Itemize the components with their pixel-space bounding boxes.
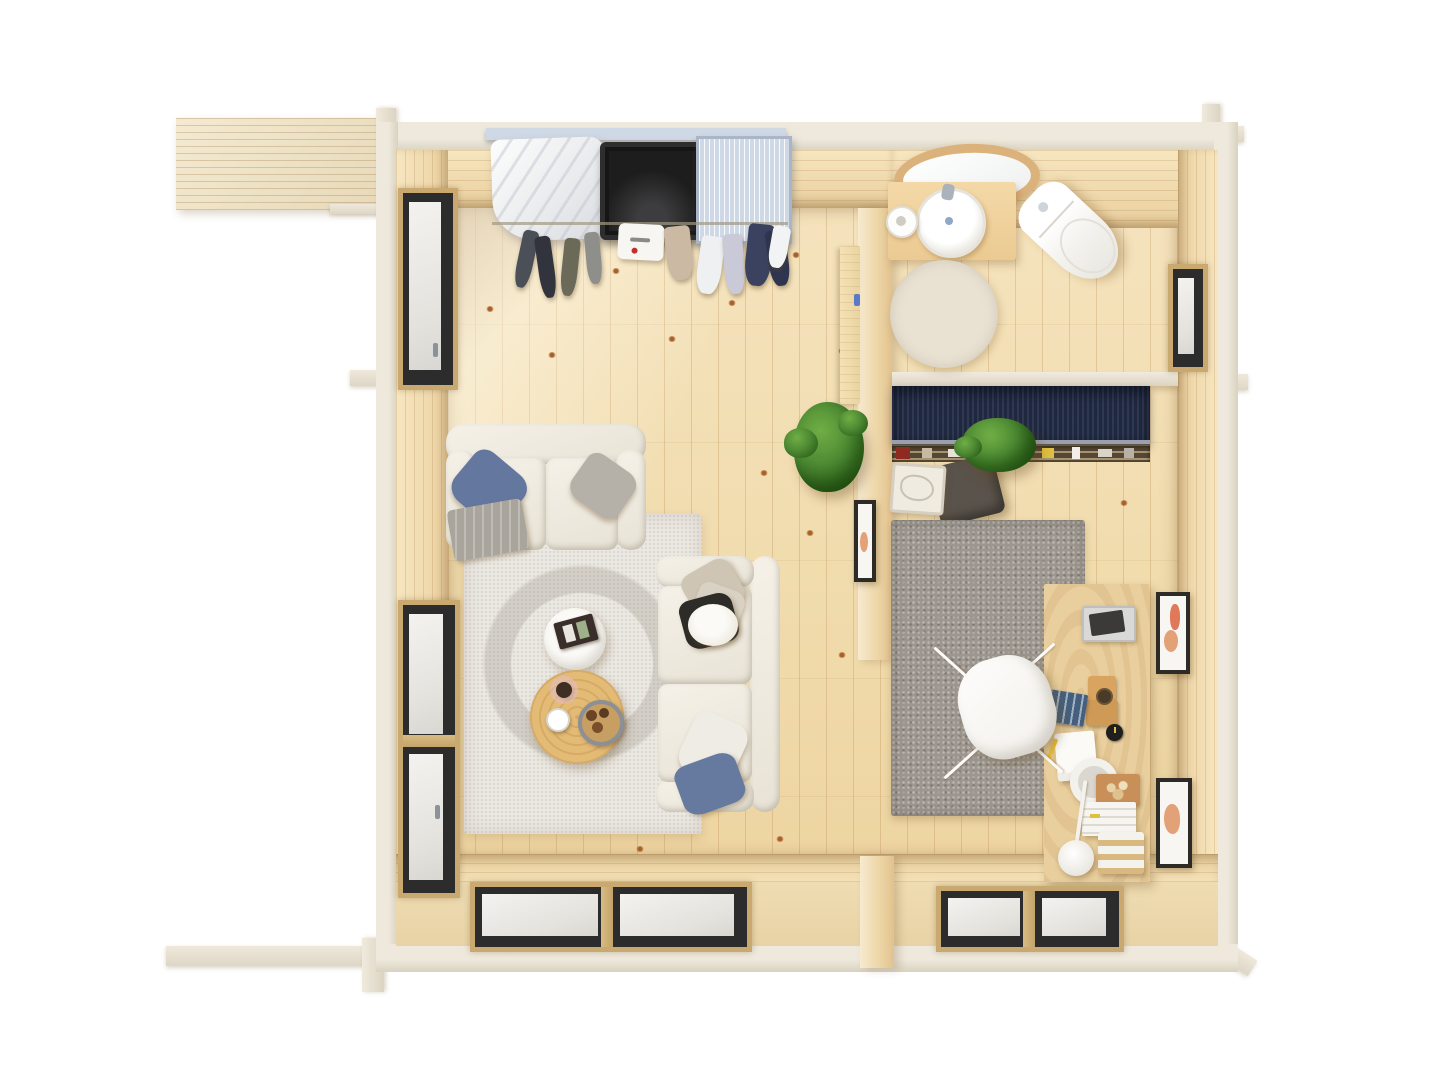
plant-sprig (784, 428, 818, 458)
garment-cover (490, 136, 607, 242)
window-glass (1039, 895, 1109, 939)
toilet-paper-roll (886, 206, 918, 238)
flower-vase (556, 682, 572, 698)
door-handle (854, 294, 860, 306)
right-wall-inner (1178, 150, 1218, 880)
tote-bag (617, 223, 665, 261)
window-left-lower (398, 600, 460, 898)
floor-knot (776, 836, 784, 842)
window-glass (406, 751, 446, 883)
window-handle (433, 343, 438, 357)
window-left-upper (398, 188, 458, 390)
pastry (592, 722, 603, 733)
cabin-top-view (0, 0, 1445, 1084)
organizer-opening (609, 151, 695, 231)
bathroom-office-wall-edge (892, 372, 1178, 386)
floor-knot (838, 652, 846, 658)
storage-basket (889, 462, 946, 516)
book-spine (896, 447, 910, 459)
partition-wall (858, 208, 892, 660)
book-spine (1124, 448, 1134, 458)
organizer-knob (1096, 688, 1113, 705)
dried-sprigs (1101, 779, 1135, 801)
floor-knot (760, 470, 768, 476)
partition-wall-stub-bottom (860, 856, 894, 968)
floor-knot (806, 530, 814, 536)
book-spine (1072, 447, 1080, 459)
roll-core (896, 216, 906, 226)
glazed-door-living (470, 882, 752, 952)
book-spine (922, 448, 932, 458)
door-glass (479, 891, 601, 939)
floor-knot (548, 352, 556, 358)
art-shape-terracotta (1170, 604, 1180, 630)
wall-art-bottom (1156, 778, 1192, 868)
plant-sprig (838, 410, 868, 436)
art-shape-peach-large (1164, 804, 1180, 834)
magazine-tray (1082, 606, 1136, 642)
door-mullion (601, 887, 613, 947)
window-handle (435, 805, 440, 819)
magazine-page (562, 624, 576, 643)
window-mullion (403, 735, 455, 747)
pastry (599, 708, 609, 718)
art-shape-peach (1164, 630, 1178, 652)
desk-clock (1106, 724, 1123, 741)
basin-drain (945, 217, 953, 225)
book-spine (1042, 448, 1054, 458)
floor-knot (486, 306, 494, 312)
sun-hat (688, 604, 738, 646)
flush-button (1036, 200, 1050, 214)
book-spine (1098, 449, 1112, 457)
bathroom-door-open (840, 246, 860, 404)
chaise-backrest (750, 556, 780, 812)
plant-sprig (954, 436, 982, 458)
serving-plate (578, 700, 624, 746)
left-wall-outer (376, 122, 398, 970)
clock-hand (1114, 727, 1116, 733)
floor-knot (612, 268, 620, 274)
floor-knot (636, 846, 644, 852)
window-glass (406, 611, 446, 737)
coffee-cup (546, 708, 570, 732)
roof-overhang (176, 118, 388, 210)
floor-knot (728, 300, 736, 306)
trailing-plant (962, 418, 1036, 472)
pastry (586, 710, 597, 721)
window-glass (406, 199, 444, 373)
floor-knot (668, 336, 676, 342)
glazed-window-office (936, 886, 1124, 952)
letter-trays (1098, 832, 1144, 874)
partition-picture-frame (854, 500, 876, 582)
door-glass (617, 891, 737, 939)
magazine-page (576, 620, 590, 639)
lamp-base (1058, 840, 1094, 876)
bathroom-window-glass (1175, 275, 1197, 357)
wall-art-top (1156, 592, 1190, 674)
floor-knot (1120, 500, 1128, 506)
floor-knot (792, 252, 800, 258)
bathroom-rug (890, 260, 998, 368)
bathroom-window (1168, 264, 1208, 372)
potted-plant (794, 402, 864, 492)
foundation-beam-left (166, 946, 386, 966)
window-mullion (1023, 891, 1035, 947)
basket-fold (899, 474, 935, 502)
book-stack (1082, 802, 1136, 836)
yellow-tab (1090, 814, 1100, 818)
partition-art-shape (860, 532, 868, 552)
magazine-in-tray (1089, 610, 1126, 637)
tote-logo (630, 237, 650, 242)
window-glass (945, 895, 1023, 939)
tote-red-dot (631, 248, 637, 254)
